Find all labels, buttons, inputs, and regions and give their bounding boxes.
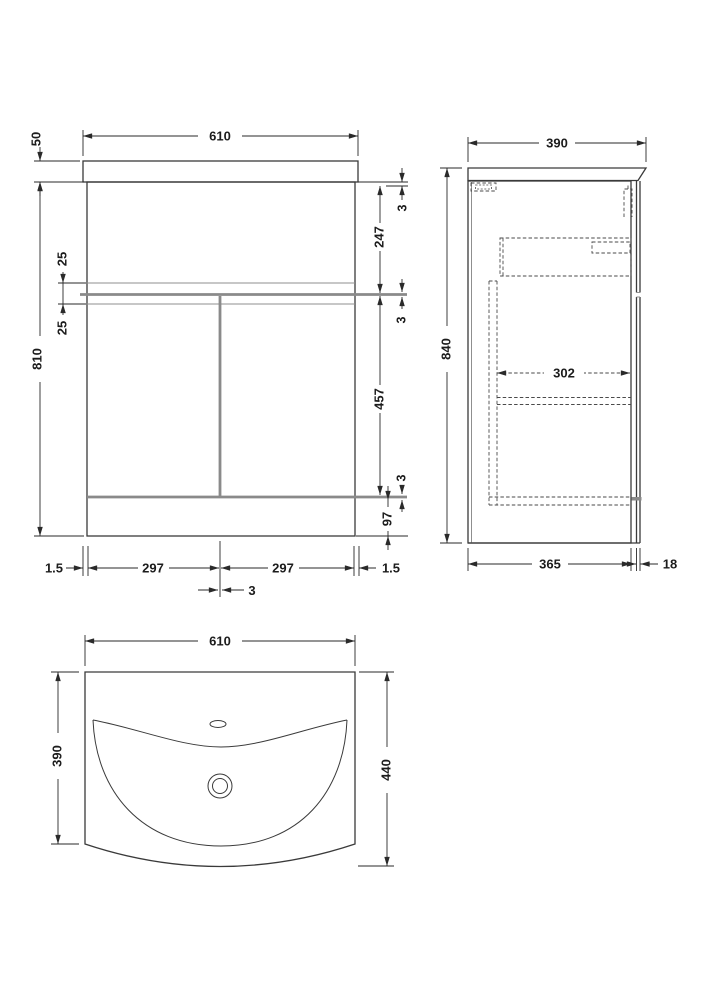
tap-hole	[210, 721, 226, 728]
door-gap-side-mark	[632, 497, 642, 501]
side-structure	[468, 168, 646, 543]
dim-edge-right: 1.5	[382, 561, 400, 576]
fixing-bracket-hidden	[471, 183, 496, 191]
dim-front-width: 610	[209, 129, 231, 144]
dim-gap-lower: 3	[395, 474, 409, 481]
basin-plan-view: 610 390 440	[50, 634, 395, 867]
waste-drain-outer	[208, 774, 232, 798]
plan-structure	[85, 672, 355, 867]
dim-door-left: 297	[142, 561, 164, 576]
ext-gap-top	[358, 182, 408, 186]
dim-drawer-depth: 302	[553, 366, 575, 381]
dim-door-height: 457	[372, 388, 387, 410]
fixing-bracket-slot-hidden	[476, 185, 492, 189]
dim-gap-middle: 3	[395, 316, 409, 323]
dim-plan-overall-depth: 440	[379, 759, 394, 781]
dim-plan-width: 610	[209, 634, 231, 649]
technical-drawing-canvas: 610 50 810 25 25 3	[0, 0, 707, 1000]
side-section-view: 390 840 302 365 18	[439, 136, 678, 572]
vanity-unit-technical-drawing: 610 50 810 25 25 3	[0, 0, 707, 1000]
dim-side-height: 840	[439, 338, 454, 360]
waste-drain-inner	[213, 779, 228, 794]
dim-door-right: 297	[272, 561, 294, 576]
basin-outline-plan	[85, 672, 355, 867]
door-hidden-outline	[489, 281, 631, 505]
dim-shelf-offset-lower: 25	[55, 321, 70, 335]
dim-side-depth: 390	[546, 136, 568, 151]
side-dimensions: 390 840 302 365 18	[439, 136, 678, 572]
dim-cabinet-height: 810	[30, 348, 45, 370]
dim-plinth-height: 97	[380, 512, 395, 526]
front-structure	[80, 161, 407, 536]
countertop-front	[83, 161, 358, 182]
dim-basin-depth: 390	[50, 745, 65, 767]
drawer-runner-hidden	[592, 242, 630, 253]
dim-shelf-offset-upper: 25	[55, 252, 70, 266]
carcass-side	[468, 181, 631, 543]
ext-counter-height	[34, 161, 84, 182]
dim-carcass-depth: 365	[539, 557, 561, 572]
dim-edge-left: 1.5	[45, 561, 63, 576]
dim-door-gap: 3	[248, 583, 255, 598]
dim-gap-top: 3	[396, 204, 410, 211]
countertop-side	[468, 168, 646, 181]
plan-dimensions: 610 390 440	[50, 634, 395, 867]
front-elevation-view: 610 50 810 25 25 3	[29, 129, 410, 599]
ext-front-bottom	[83, 541, 359, 597]
drawer-box-hidden	[500, 238, 631, 276]
dim-counter-height: 50	[29, 132, 44, 146]
basin-rear-deck-curve	[93, 720, 347, 747]
dim-upper-panel: 247	[372, 226, 387, 248]
shelf-hidden	[497, 398, 631, 405]
basin-bowl-curve	[93, 720, 347, 846]
dim-door-thickness: 18	[663, 557, 677, 572]
